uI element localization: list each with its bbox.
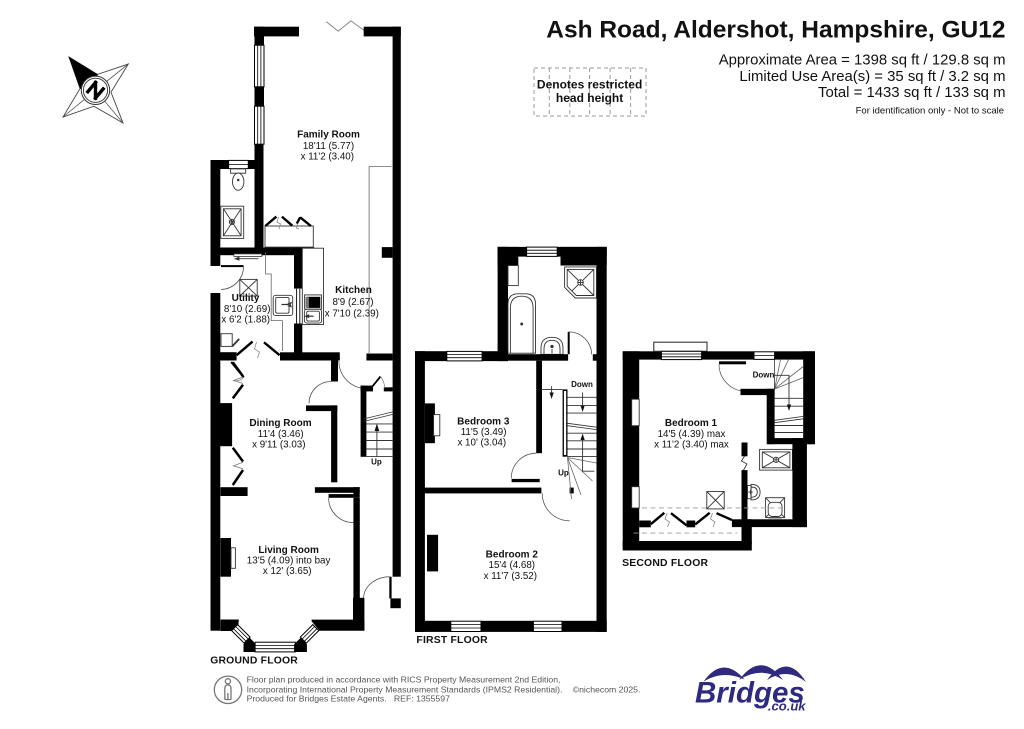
svg-text:x 12' (3.65): x 12' (3.65): [263, 566, 312, 577]
svg-text:11'4 (3.46): 11'4 (3.46): [258, 429, 304, 440]
svg-text:Bedroom 3: Bedroom 3: [457, 417, 510, 428]
svg-text:Up: Up: [371, 458, 382, 467]
svg-text:8'9 (2.67): 8'9 (2.67): [332, 297, 373, 308]
svg-text:x 9'11 (3.03): x 9'11 (3.03): [252, 439, 305, 450]
svg-text:Dining Room: Dining Room: [249, 418, 311, 429]
svg-text:x 6'2 (1.88): x 6'2 (1.88): [221, 315, 270, 326]
svg-text:Utility: Utility: [232, 293, 260, 304]
svg-text:head height: head height: [556, 91, 623, 105]
svg-text:x 7'10 (2.39): x 7'10 (2.39): [325, 308, 379, 319]
svg-text:FIRST FLOOR: FIRST FLOOR: [416, 635, 488, 646]
svg-text:Limited Use Area(s) = 35 sq ft: Limited Use Area(s) = 35 sq ft / 3.2 sq …: [739, 69, 1005, 85]
svg-text:18'11 (5.77): 18'11 (5.77): [303, 141, 354, 152]
svg-text:.co.uk: .co.uk: [768, 699, 806, 714]
svg-text:Ash Road, Aldershot, Hampshire: Ash Road, Aldershot, Hampshire, GU12: [546, 16, 1005, 43]
svg-text:©nichecom 2025.: ©nichecom 2025.: [573, 685, 641, 695]
svg-text:Floor plan produced in accorda: Floor plan produced in accordance with R…: [247, 675, 561, 685]
svg-text:Living Room: Living Room: [258, 545, 319, 556]
svg-text:x 11'2 (3.40) max: x 11'2 (3.40) max: [654, 439, 729, 450]
svg-text:Denotes restricted: Denotes restricted: [537, 78, 642, 92]
svg-text:Family Room: Family Room: [297, 130, 360, 141]
svg-text:Down: Down: [571, 380, 593, 389]
svg-text:x 11'7 (3.52): x 11'7 (3.52): [484, 571, 537, 582]
svg-text:Bedroom 1: Bedroom 1: [665, 418, 718, 429]
svg-text:13'5 (4.09) into bay: 13'5 (4.09) into bay: [247, 555, 331, 566]
svg-text:14'5 (4.39) max: 14'5 (4.39) max: [658, 429, 726, 440]
svg-text:Down: Down: [753, 371, 775, 380]
svg-text:SECOND FLOOR: SECOND FLOOR: [622, 558, 708, 569]
svg-text:Approximate Area = 1398 sq ft: Approximate Area = 1398 sq ft / 129.8 sq…: [719, 53, 1006, 69]
svg-text:Total = 1433 sq ft / 133 sq m: Total = 1433 sq ft / 133 sq m: [818, 85, 1005, 101]
svg-text:For identification only - Not: For identification only - Not to scale: [856, 106, 1004, 117]
svg-text:x 11'2 (3.40): x 11'2 (3.40): [301, 151, 354, 162]
svg-text:Up: Up: [558, 468, 569, 477]
svg-text:GROUND FLOOR: GROUND FLOOR: [210, 656, 298, 667]
svg-text:15'4 (4.68): 15'4 (4.68): [489, 560, 536, 571]
svg-text:Produced for Bridges Estate Ag: Produced for Bridges Estate Agents. REF:…: [247, 694, 450, 704]
svg-text:Bedroom 2: Bedroom 2: [486, 549, 539, 560]
svg-text:x 10' (3.04): x 10' (3.04): [457, 437, 506, 448]
svg-text:Kitchen: Kitchen: [335, 285, 372, 296]
